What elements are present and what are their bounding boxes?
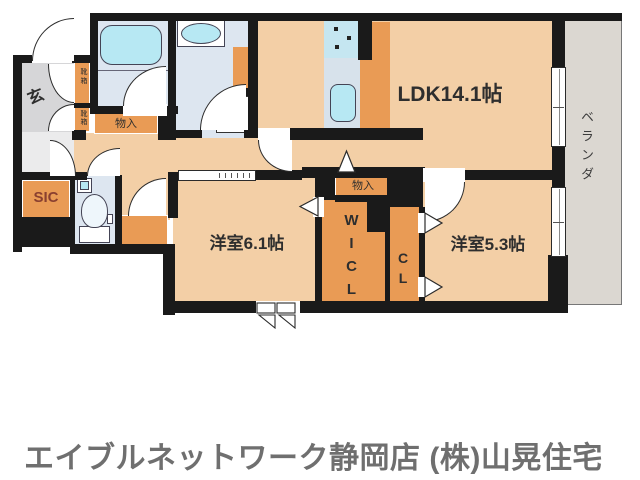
- wall-toilet-left: [70, 175, 75, 247]
- wall-entry-top-right: [72, 55, 98, 63]
- wall-toilet-right: [115, 175, 122, 247]
- toilet-handle: [107, 214, 113, 224]
- wall-corner-block-se: [548, 255, 568, 305]
- agency-caption: エイブルネットワーク静岡店 (株)山晃住宅: [24, 433, 603, 477]
- bedroom1-sliding-door: [178, 170, 256, 181]
- label-ldk: LDK14.1帖: [360, 78, 540, 108]
- window-sash-line: [553, 107, 564, 108]
- label-sic: SIC: [22, 189, 70, 206]
- wall-under-toilet: [70, 244, 175, 254]
- bedroom2-window: [551, 187, 566, 257]
- bedroom1-window-swing-icon: [259, 315, 275, 328]
- wall-wash-bottom-right: [244, 130, 250, 138]
- label-shoebox-upper: 靴箱: [78, 68, 88, 86]
- wall-cl-top: [387, 167, 423, 207]
- wicl-door-opening: [313, 197, 324, 217]
- wall-wash-right: [248, 13, 258, 138]
- stove-burner-icon: [334, 27, 338, 31]
- kitchen-sink: [330, 84, 356, 122]
- label-bedroom1: 洋室6.1帖: [183, 229, 311, 254]
- ldk-window: [551, 67, 566, 147]
- washbasin: [181, 23, 221, 44]
- hall-closet: [120, 215, 168, 247]
- cl-door-opening-lower: [418, 277, 426, 297]
- wall-wicl-cl: [385, 200, 390, 305]
- bedroom2-door-opening: [423, 168, 465, 182]
- toilet-tank: [79, 226, 110, 243]
- wall-stove-stub: [358, 18, 372, 60]
- wall-slider-right: [256, 170, 302, 180]
- bedroom1-window-opening: [256, 301, 300, 313]
- shoebox-divider: [74, 103, 90, 108]
- label-shoebox-lower: 靴箱: [78, 110, 88, 126]
- wall-storage-ldk-left: [322, 172, 335, 200]
- stove-burner-icon: [347, 36, 351, 40]
- label-storage-ldk: 物入: [335, 177, 391, 193]
- wall-wicl-left: [315, 167, 322, 305]
- wall-bottom: [163, 301, 568, 313]
- wall-bath-wash: [168, 20, 176, 110]
- label-veranda: ベランダ: [577, 110, 596, 186]
- wall-step-stub: [72, 130, 86, 140]
- wall-corner-block-sw: [15, 217, 70, 247]
- floorplan-image: LDK14.1帖 洋室6.1帖 洋室5.3帖 WICL CL ベランダ 玄 SI…: [0, 0, 640, 480]
- toilet-hand-basin-bowl: [80, 181, 89, 190]
- label-storage-hall: 物入: [94, 115, 158, 131]
- wall-under-storage-ldk: [335, 195, 367, 202]
- bedroom1-window-swing-icon: [279, 315, 295, 328]
- wall-bedroom2-top: [465, 170, 553, 180]
- toilet-bowl: [81, 194, 108, 228]
- wall-bath-left: [90, 13, 98, 114]
- label-wicl: WICL: [343, 212, 360, 304]
- label-bedroom2: 洋室5.3帖: [426, 230, 550, 255]
- window-sash-line: [553, 222, 564, 223]
- wall-kitchen-bottom: [290, 128, 423, 140]
- front-door-arc: [32, 18, 74, 61]
- wall-pocket-right: [168, 172, 178, 218]
- kitchen-stove-panel: [324, 18, 360, 59]
- label-cl: CL: [395, 250, 411, 290]
- ldk-door-opening: [258, 128, 290, 140]
- stove-burner-icon: [335, 45, 339, 49]
- wall-wash-bottom-left: [176, 130, 202, 138]
- bathtub: [100, 25, 162, 65]
- sliding-door-ticks: [219, 173, 253, 178]
